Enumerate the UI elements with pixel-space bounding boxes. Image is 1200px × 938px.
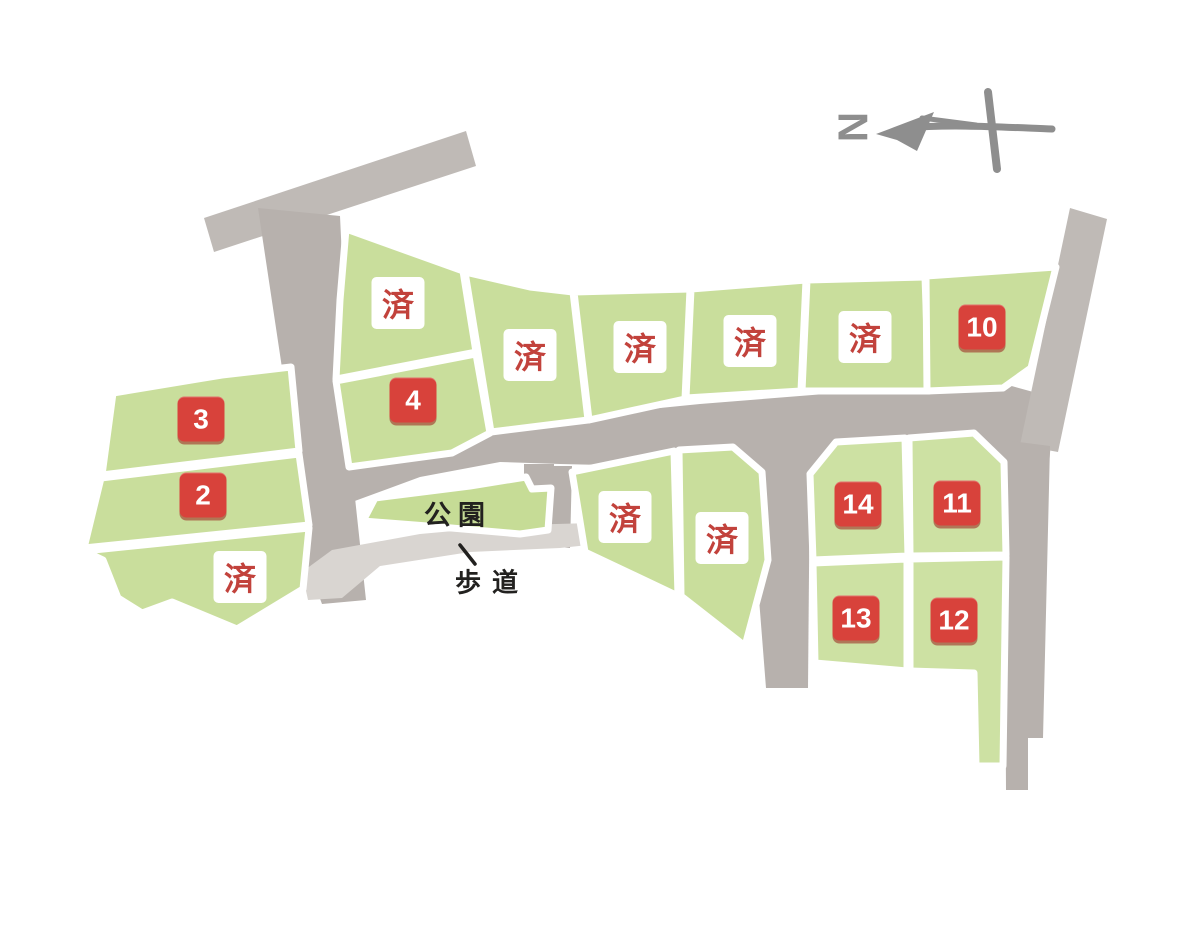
lot-badge-14: 14 (835, 482, 882, 527)
compass-cross-line (988, 92, 997, 169)
sold-badge-top-row-5: 済 (839, 311, 892, 363)
sold-badge-top-row-4: 済 (724, 315, 777, 367)
site-plan-svg: N (0, 0, 1200, 938)
lot-badge-3: 3 (178, 397, 225, 442)
lot-badge-13: 13 (833, 596, 880, 641)
compass-north-letter: N (830, 112, 877, 142)
lot-badge-10: 10 (959, 305, 1006, 350)
sold-badge-center-2: 済 (696, 512, 749, 564)
sold-badge-top-row-rear: 済 (372, 277, 425, 329)
sold-badge-top-row-3: 済 (614, 321, 667, 373)
park-label: 公園 (424, 494, 492, 533)
lot-badge-12: 12 (931, 598, 978, 643)
lot-badge-2: 2 (180, 473, 227, 518)
compass-axis-line (905, 126, 1052, 129)
sidewalk-label: 歩道 (455, 563, 529, 600)
sold-badge-top-row-2: 済 (504, 329, 557, 381)
lot-badge-4: 4 (390, 378, 437, 423)
sold-badge-center-1: 済 (599, 491, 652, 543)
road-east-vertical (1004, 440, 1050, 790)
parcel-lot-12 (910, 557, 1006, 766)
compass: N (830, 92, 1053, 169)
lot-map: N 済 4 済 済 済 済 10 3 2 済 済 済 14 11 13 12 公… (0, 0, 1200, 938)
sold-badge-west: 済 (214, 551, 267, 603)
lot-badge-11: 11 (934, 481, 981, 526)
